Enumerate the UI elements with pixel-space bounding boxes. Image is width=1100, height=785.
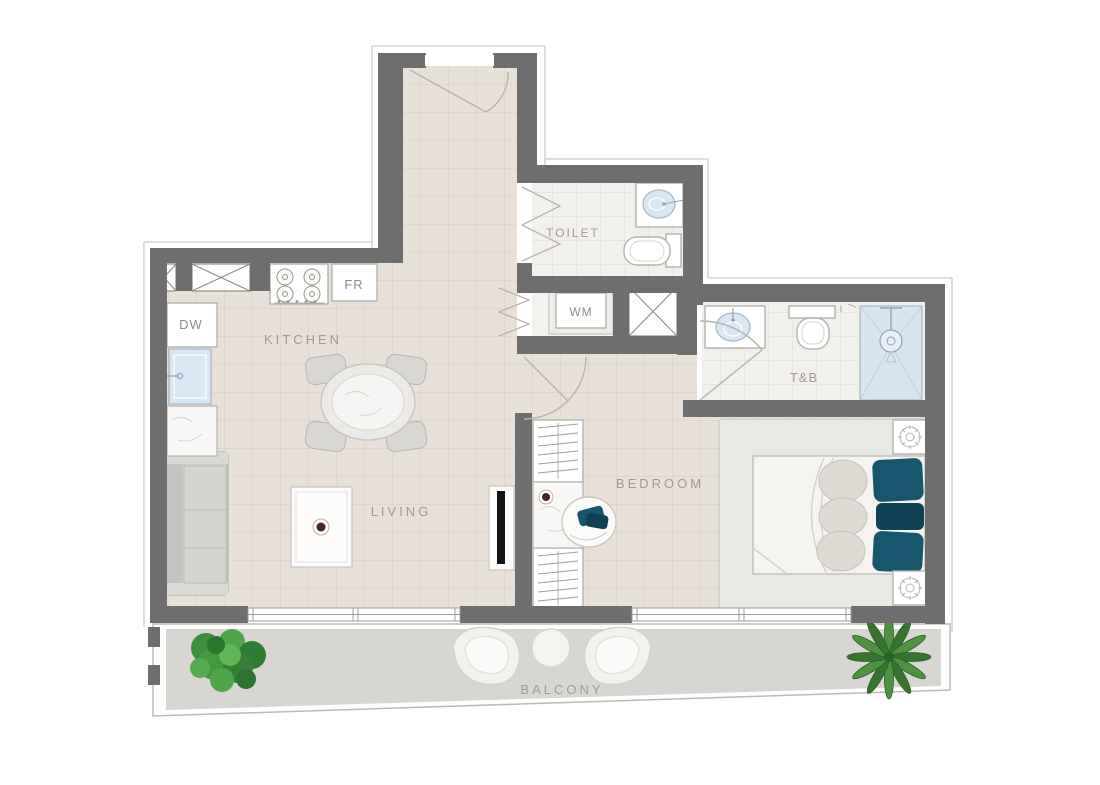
tv-unit [489, 486, 514, 570]
nightstand-top [893, 420, 927, 454]
floor-plan: KITCHEN LIVING BEDROOM TOILET T&B BALCON… [0, 0, 1100, 785]
shaft-box-large [192, 264, 250, 291]
balcony-wall-stub [148, 627, 160, 647]
window [744, 608, 851, 621]
floor-hall [517, 354, 697, 415]
window [632, 608, 744, 621]
balcony-table [532, 629, 570, 667]
sofa [166, 452, 228, 595]
accent-chair [562, 497, 616, 547]
tv-screen [497, 491, 505, 564]
room-label-kitchen: KITCHEN [264, 332, 342, 347]
balcony-wall-stub [148, 665, 160, 685]
balcony [148, 615, 950, 716]
bed-pillows-teal [872, 458, 924, 574]
room-label-balcony: BALCONY [520, 682, 603, 697]
appliance-label-fr: FR [344, 277, 363, 292]
tb-sink [705, 306, 765, 348]
tb-shower [860, 306, 922, 400]
room-label-toilet: TOILET [546, 226, 600, 240]
entry-door-opening [425, 55, 494, 66]
room-label-tb: T&B [790, 370, 818, 385]
stove [270, 264, 328, 304]
window [248, 608, 358, 621]
kitchen-counter [167, 406, 217, 456]
window [358, 608, 460, 621]
floor-plan-page: KITCHEN LIVING BEDROOM TOILET T&B BALCON… [0, 0, 1100, 785]
toilet-wc [624, 234, 681, 267]
nightstand-bottom [893, 571, 927, 605]
appliance-label-dw: DW [179, 317, 203, 332]
bed [753, 456, 925, 574]
room-label-living: LIVING [371, 504, 432, 519]
shaft-box-wm [629, 287, 677, 336]
coffee-table [291, 487, 352, 567]
appliance-label-wm: WM [569, 305, 592, 319]
bed-pillows-gray [817, 460, 867, 571]
room-label-bedroom: BEDROOM [616, 476, 704, 491]
dining-set [304, 353, 428, 452]
toilet-sink [636, 183, 684, 227]
